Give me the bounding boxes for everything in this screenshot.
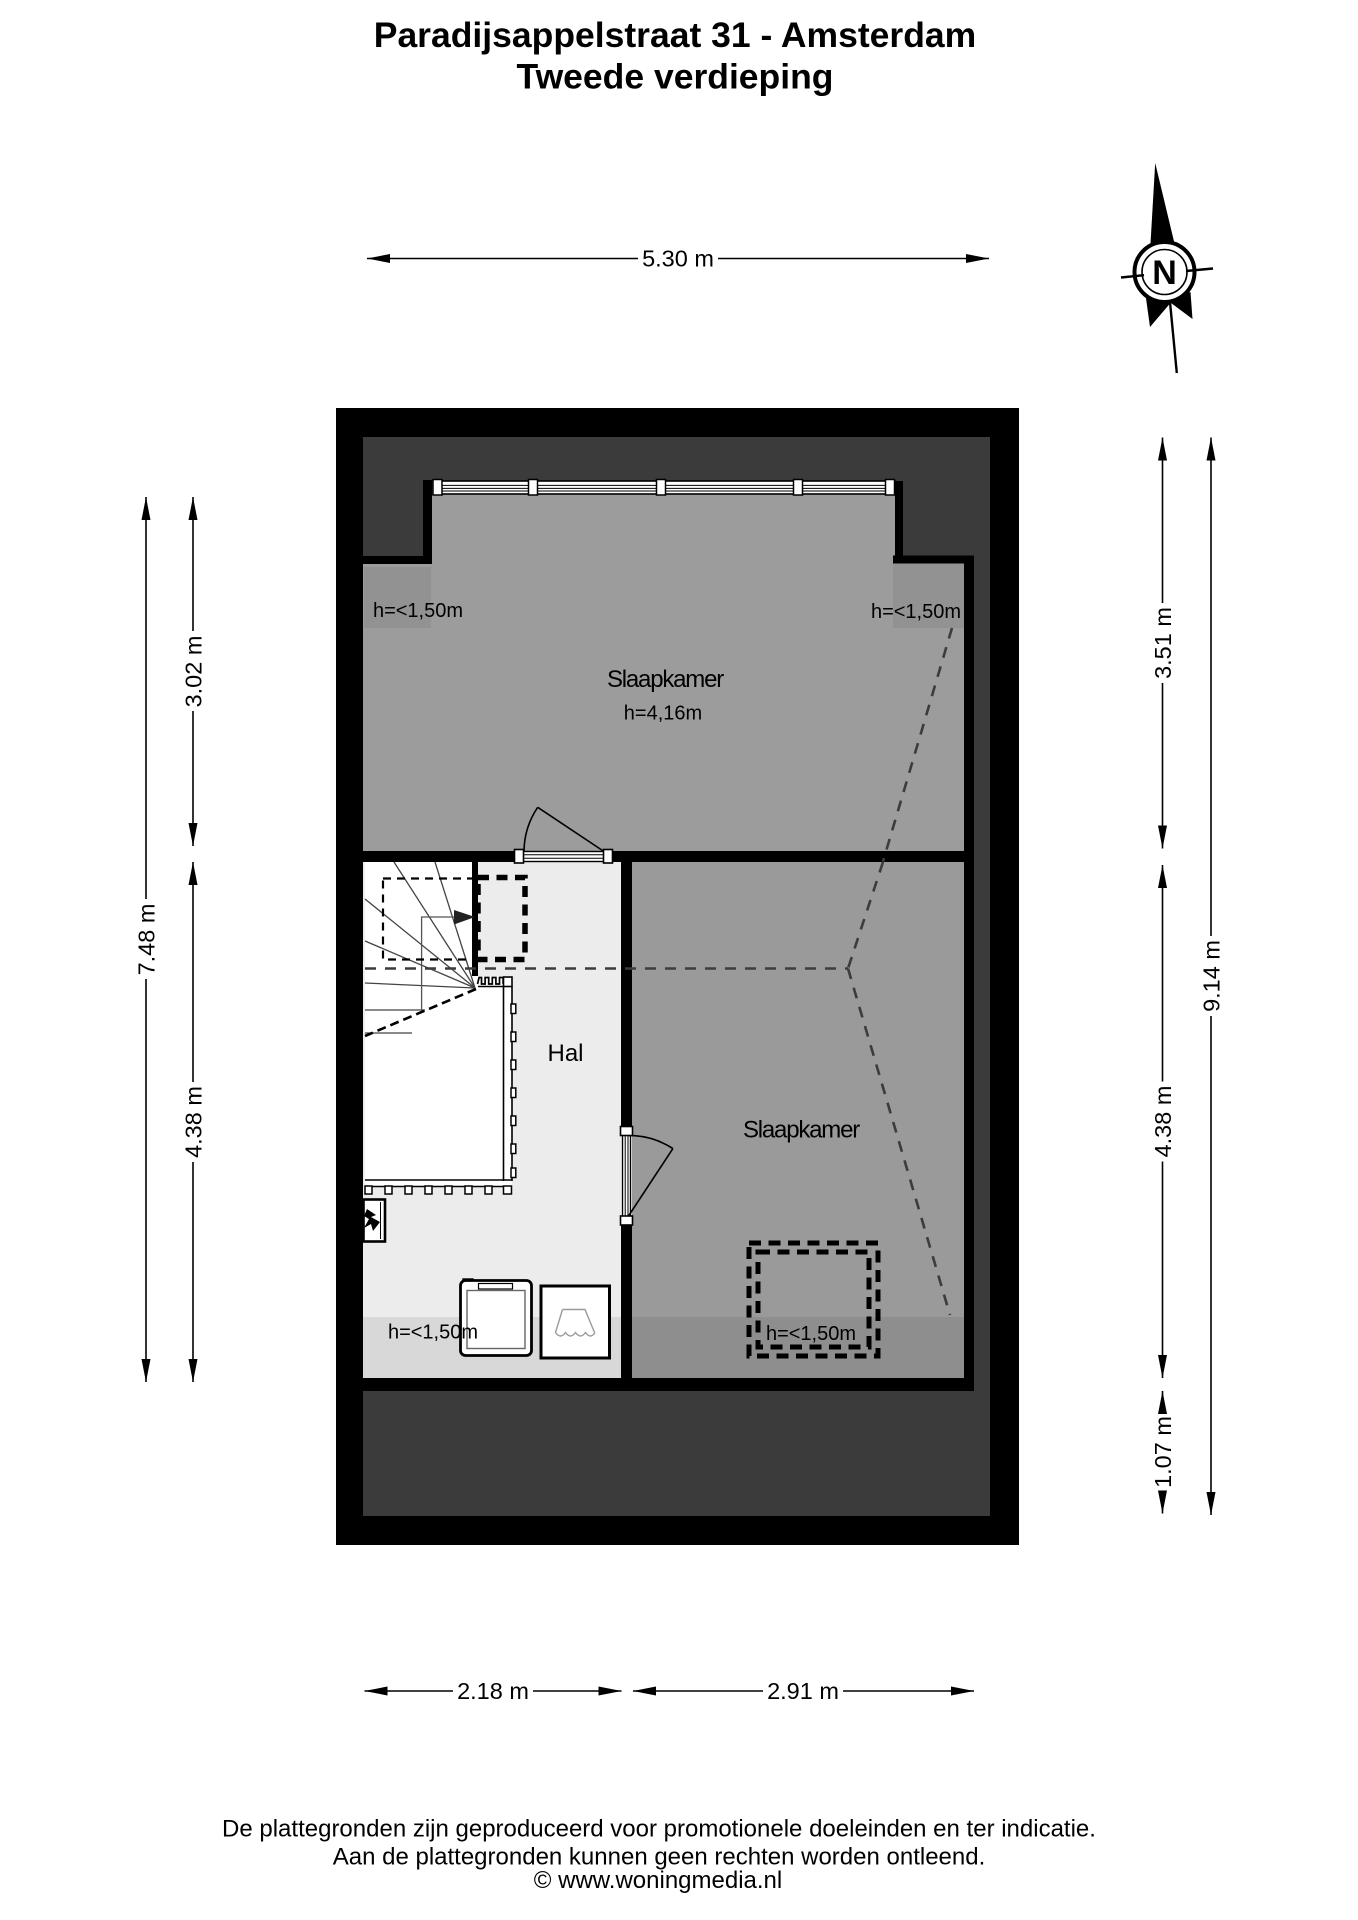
svg-text:2.18 m: 2.18 m (457, 1678, 529, 1704)
svg-text:Tweede verdieping: Tweede verdieping (517, 57, 834, 97)
svg-text:h=<1,50m: h=<1,50m (373, 600, 463, 622)
svg-text:h=<1,50m: h=<1,50m (388, 1322, 478, 1344)
svg-text:h=<1,50m: h=<1,50m (766, 1323, 856, 1345)
svg-text:4.38 m: 4.38 m (181, 1086, 207, 1158)
svg-text:5.30 m: 5.30 m (642, 246, 714, 272)
svg-text:© www.woningmedia.nl: © www.woningmedia.nl (534, 1867, 782, 1894)
svg-text:De plattegronden zijn geproduc: De plattegronden zijn geproduceerd voor … (222, 1816, 1096, 1843)
svg-text:3.02 m: 3.02 m (181, 636, 207, 708)
svg-text:Hal: Hal (547, 1040, 583, 1067)
svg-text:Slaapkamer: Slaapkamer (743, 1117, 860, 1144)
svg-text:h=<1,50m: h=<1,50m (871, 601, 961, 623)
svg-text:h=4,16m: h=4,16m (624, 703, 702, 725)
svg-text:4.38 m: 4.38 m (1150, 1086, 1176, 1158)
svg-text:N: N (1152, 254, 1177, 292)
svg-text:9.14 m: 9.14 m (1199, 940, 1225, 1012)
svg-text:1.07 m: 1.07 m (1150, 1416, 1176, 1488)
svg-text:Paradijsappelstraat 31 - Amste: Paradijsappelstraat 31 - Amsterdam (374, 15, 976, 55)
svg-text:Slaapkamer: Slaapkamer (607, 666, 724, 693)
svg-text:2.91 m: 2.91 m (767, 1678, 839, 1704)
svg-text:3.51 m: 3.51 m (1150, 607, 1176, 679)
svg-text:7.48 m: 7.48 m (134, 904, 160, 976)
